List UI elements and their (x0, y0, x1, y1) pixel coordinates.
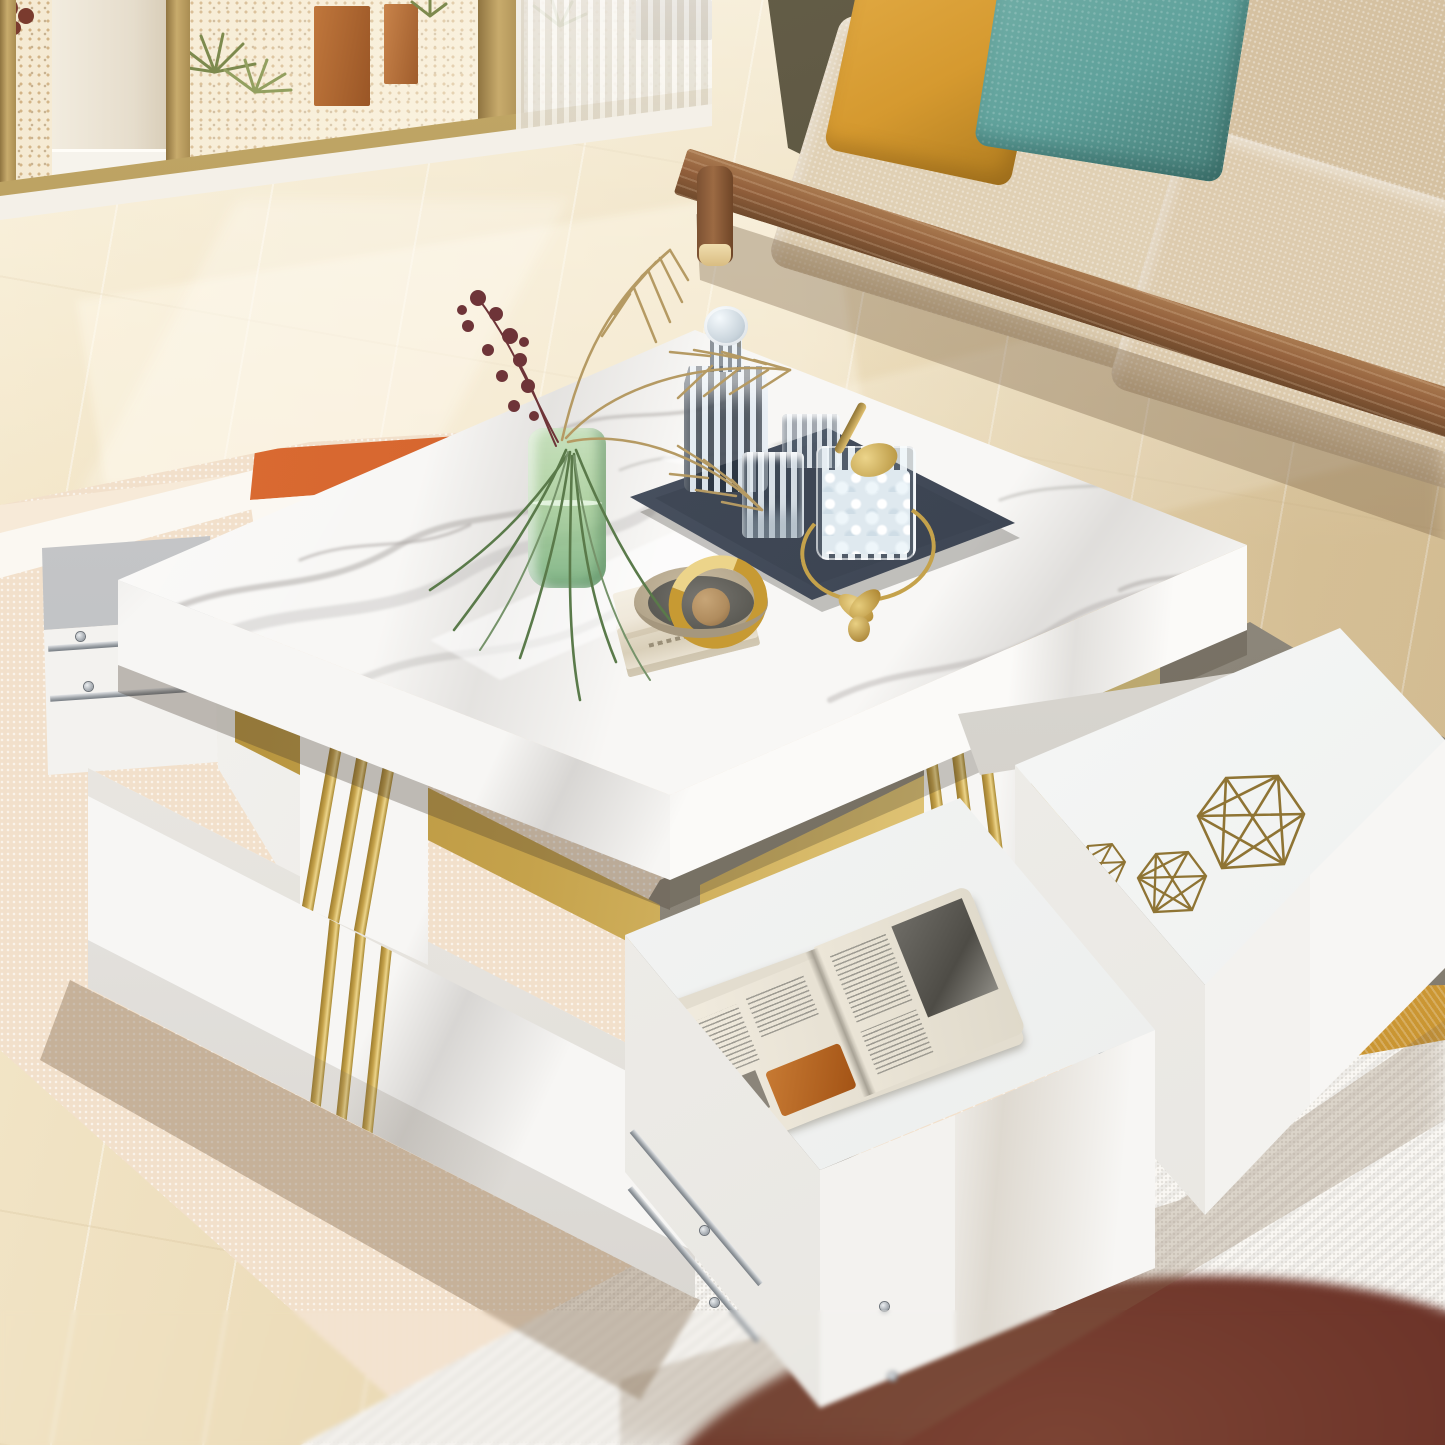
living-room-scene (0, 0, 1445, 1445)
dried-plants (370, 210, 830, 730)
rail-screw (710, 1298, 719, 1307)
rail-screw (700, 1226, 709, 1235)
depth-blur-overlay (0, 1310, 1445, 1445)
magazine-orange-image (765, 1043, 857, 1117)
